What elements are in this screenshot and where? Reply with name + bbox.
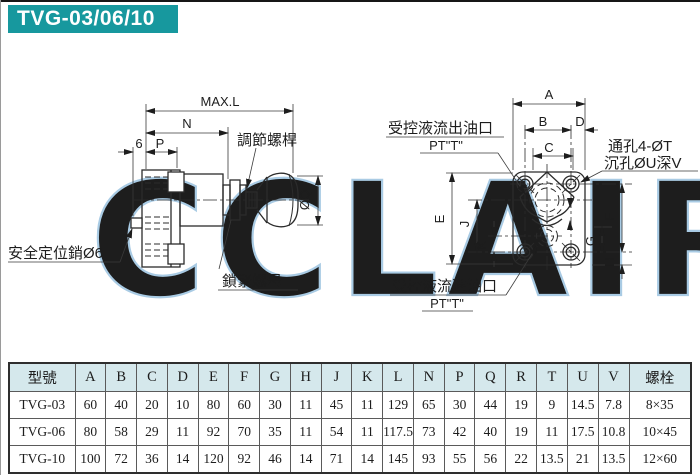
value-cell: 22 bbox=[506, 446, 537, 474]
model-cell: TVG-03 bbox=[9, 392, 75, 419]
value-cell: 11 bbox=[290, 392, 321, 419]
value-cell: 120 bbox=[198, 446, 229, 474]
column-header-11: L bbox=[383, 363, 414, 392]
dim-a: A bbox=[545, 87, 554, 102]
value-cell: 21 bbox=[567, 446, 598, 474]
value-cell: 17.5 bbox=[567, 419, 598, 446]
value-cell: 11 bbox=[352, 392, 383, 419]
value-cell: 92 bbox=[198, 419, 229, 446]
value-cell: 11 bbox=[352, 419, 383, 446]
value-cell: 29 bbox=[137, 419, 168, 446]
dim-f: F bbox=[602, 213, 617, 221]
value-cell: 9 bbox=[536, 392, 567, 419]
dim-e: E bbox=[432, 214, 447, 223]
value-cell: 13.5 bbox=[536, 446, 567, 474]
value-cell: 19 bbox=[506, 392, 537, 419]
value-cell: 42 bbox=[444, 419, 475, 446]
spec-sheet-page: TVG-03/06/10 CCLAIR bbox=[0, 0, 700, 475]
value-cell: 60 bbox=[75, 392, 106, 419]
value-cell: 11 bbox=[536, 419, 567, 446]
screw-top bbox=[168, 172, 184, 192]
label-adjusting-rod: 調節螺桿 bbox=[237, 131, 297, 149]
value-cell: 7.8 bbox=[598, 392, 629, 419]
column-header-7: G bbox=[260, 363, 291, 392]
column-header-12: N bbox=[413, 363, 444, 392]
value-cell: 55 bbox=[444, 446, 475, 474]
column-header-3: C bbox=[137, 363, 168, 392]
dim-phi-q: ØQ bbox=[297, 190, 312, 210]
value-cell: 58 bbox=[106, 419, 137, 446]
column-header-10: K bbox=[352, 363, 383, 392]
column-header-6: F bbox=[229, 363, 260, 392]
table-row: TVG-036040201080603011451112965304419914… bbox=[9, 392, 691, 419]
table-row: TVG-0680582911927035115411117.5734240191… bbox=[9, 419, 691, 446]
label-lock-nut: 鎖緊螺母 bbox=[222, 273, 282, 290]
column-header-16: T bbox=[536, 363, 567, 392]
model-cell: TVG-06 bbox=[9, 419, 75, 446]
value-cell: 30 bbox=[260, 392, 291, 419]
column-header-19: 螺栓 bbox=[629, 363, 691, 392]
label-safety-pin: 安全定位銷Ø6 bbox=[8, 244, 103, 262]
value-cell: 93 bbox=[413, 446, 444, 474]
dim-d: D bbox=[575, 114, 584, 129]
column-header-14: Q bbox=[475, 363, 506, 392]
model-cell: TVG-10 bbox=[9, 446, 75, 474]
dim-c: C bbox=[544, 140, 553, 155]
value-cell: 145 bbox=[383, 446, 414, 474]
value-cell: 19 bbox=[506, 419, 537, 446]
table-row: TVG-101007236141209246147114145935556221… bbox=[9, 446, 691, 474]
label-counterbore: 沉孔ØU深V bbox=[604, 155, 682, 172]
value-cell: 80 bbox=[75, 419, 106, 446]
value-cell: 14 bbox=[290, 446, 321, 474]
dim-n: N bbox=[182, 116, 191, 131]
dim-k: K bbox=[474, 240, 489, 249]
value-cell: 10 bbox=[167, 392, 198, 419]
dim-g: G bbox=[583, 236, 598, 246]
column-header-18: V bbox=[598, 363, 629, 392]
value-cell: 35 bbox=[260, 419, 291, 446]
column-header-15: R bbox=[506, 363, 537, 392]
column-header-13: P bbox=[444, 363, 475, 392]
value-cell: 70 bbox=[229, 419, 260, 446]
screw-bottom bbox=[168, 244, 184, 264]
value-cell: 73 bbox=[413, 419, 444, 446]
spec-table: 型號ABCDEFGHJKLNPQRTUV螺栓TVG-03604020108060… bbox=[8, 362, 692, 474]
value-cell: 36 bbox=[137, 446, 168, 474]
dim-p: P bbox=[156, 136, 165, 151]
dim-h: H bbox=[602, 257, 617, 266]
dim-b: B bbox=[539, 114, 548, 129]
value-cell: 100 bbox=[75, 446, 106, 474]
column-header-5: E bbox=[198, 363, 229, 392]
value-cell: 40 bbox=[106, 392, 137, 419]
label-outlet-port-thread: PT"T" bbox=[429, 138, 463, 153]
value-cell: 56 bbox=[475, 446, 506, 474]
column-header-2: B bbox=[106, 363, 137, 392]
value-cell: 60 bbox=[229, 392, 260, 419]
value-cell: 14 bbox=[352, 446, 383, 474]
column-header-8: H bbox=[290, 363, 321, 392]
value-cell: 20 bbox=[137, 392, 168, 419]
value-cell: 54 bbox=[321, 419, 352, 446]
value-cell: 46 bbox=[260, 446, 291, 474]
value-cell: 44 bbox=[475, 392, 506, 419]
value-cell: 72 bbox=[106, 446, 137, 474]
value-cell: 10×45 bbox=[629, 419, 691, 446]
table-header-row: 型號ABCDEFGHJKLNPQRTUV螺栓 bbox=[9, 363, 691, 392]
value-cell: 45 bbox=[321, 392, 352, 419]
label-inlet-port-thread: PT"T" bbox=[430, 296, 464, 311]
value-cell: 80 bbox=[198, 392, 229, 419]
value-cell: 117.5 bbox=[383, 419, 414, 446]
engineering-drawing: CCLAIR bbox=[0, 0, 700, 360]
value-cell: 14.5 bbox=[567, 392, 598, 419]
value-cell: 40 bbox=[475, 419, 506, 446]
dim-j: J bbox=[457, 221, 472, 228]
column-header-1: A bbox=[75, 363, 106, 392]
label-through-holes: 通孔4-ØT bbox=[608, 138, 672, 155]
value-cell: 71 bbox=[321, 446, 352, 474]
value-cell: 129 bbox=[383, 392, 414, 419]
value-cell: 10.8 bbox=[598, 419, 629, 446]
column-header-17: U bbox=[567, 363, 598, 392]
label-outlet-port: 受控液流出油口 bbox=[388, 120, 493, 137]
column-header-0: 型號 bbox=[9, 363, 75, 392]
safety-pin bbox=[131, 218, 142, 228]
dim-max-l: MAX.L bbox=[200, 94, 239, 109]
column-header-4: D bbox=[167, 363, 198, 392]
value-cell: 13.5 bbox=[598, 446, 629, 474]
value-cell: 11 bbox=[290, 419, 321, 446]
dim-6: 6 bbox=[135, 136, 142, 151]
value-cell: 65 bbox=[413, 392, 444, 419]
value-cell: 92 bbox=[229, 446, 260, 474]
value-cell: 11 bbox=[167, 419, 198, 446]
value-cell: 14 bbox=[167, 446, 198, 474]
label-inlet-port: 受控液流進油口 bbox=[392, 278, 497, 295]
value-cell: 8×35 bbox=[629, 392, 691, 419]
column-header-9: J bbox=[321, 363, 352, 392]
value-cell: 12×60 bbox=[629, 446, 691, 474]
value-cell: 30 bbox=[444, 392, 475, 419]
